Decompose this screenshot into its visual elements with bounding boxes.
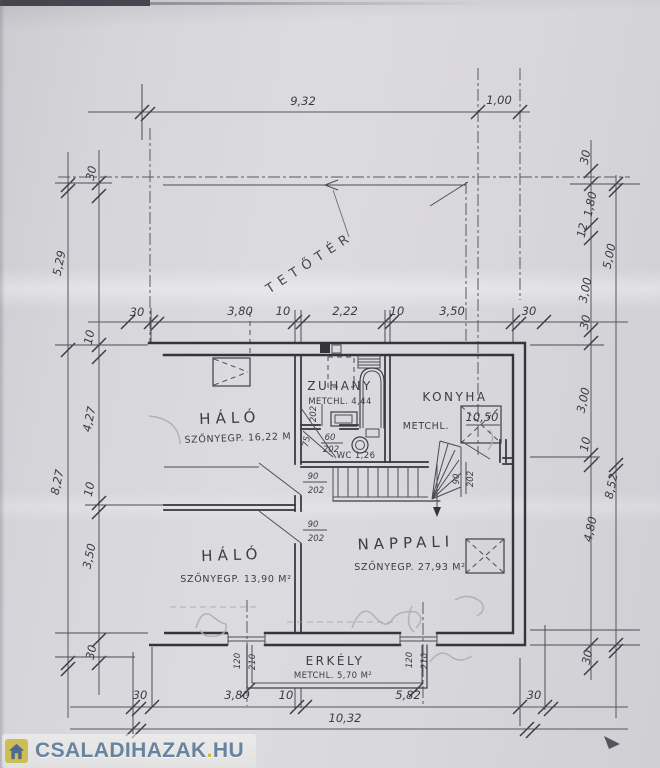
dim-left-2: 4,27	[80, 405, 99, 434]
attic-label: TETŐTÉR	[262, 228, 357, 297]
room-halo2-name: HÁLÓ	[201, 544, 263, 565]
dim-chain-bottom: 30 3,80 10 5,82 30 10,32	[70, 600, 628, 738]
dim-left-outer-1: 8,27	[48, 468, 67, 497]
washbasin	[331, 412, 357, 426]
dim-mid-5: 3,50	[439, 304, 465, 318]
floorplan-scan-page: TETŐTÉR 9,32 1,00 30 3,80 10 2,22 10 3,5…	[0, 0, 660, 768]
door-wc-w: 60	[325, 433, 336, 443]
room-halo1-detail: SZŐNYEGP. 16,22 M	[184, 431, 291, 446]
dim-mid-0: 30	[130, 305, 145, 319]
dim-right-7: 4,80	[581, 515, 600, 543]
dim-top-main: 9,32	[290, 94, 316, 108]
dim-chain-right: 30 1,80 12 3,00 30 3,00 10 4,80 30 5,00 …	[530, 140, 640, 749]
dim-mid-4: 10	[390, 304, 405, 318]
balcony-door-left-w: 120	[233, 653, 243, 669]
room-erkely-name: ERKÉLY	[306, 653, 365, 668]
dim-right-1: 1,80	[581, 190, 600, 218]
door-upper-h: 202	[308, 486, 324, 496]
room-zuhany-name: ZUHANY	[307, 379, 373, 393]
radiator	[358, 356, 380, 368]
watermark-brand: CSALADIHAZAK	[35, 739, 207, 762]
dim-bot-1: 3,80	[224, 688, 250, 702]
lobby-width-label: 75	[301, 435, 313, 447]
door-zuhany-h: 202	[309, 406, 319, 422]
room-nappali-detail: SZŐNYEGP. 27,93 M²	[354, 562, 465, 573]
floor-plan-drawing: TETŐTÉR 9,32 1,00 30 3,80 10 2,22 10 3,5…	[0, 0, 660, 768]
dim-right-5: 3,00	[574, 386, 593, 414]
dim-chain-top: 9,32 1,00	[88, 93, 530, 121]
dim-left-0: 30	[83, 165, 100, 182]
dim-mid-1: 3,80	[227, 304, 253, 318]
dim-right-8: 30	[579, 649, 596, 666]
room-halo2-detail: SZŐNYEGP. 13,90 M²	[180, 574, 291, 585]
dim-bot-4: 30	[527, 688, 542, 702]
dim-left-5: 30	[83, 644, 100, 661]
dim-chain-left: 5,29 8,27 30 10 4,27 10 3,50 30	[48, 150, 164, 718]
dim-mid-3: 2,22	[332, 304, 358, 318]
door-konyha-h: 202	[466, 471, 476, 487]
room-nappali-name: NAPPALI	[357, 532, 454, 553]
house-icon	[5, 739, 28, 763]
chimney-flue	[320, 344, 330, 353]
room-konyha-area: 10,50	[466, 410, 499, 424]
room-konyha-detail: METCHL.	[403, 421, 449, 432]
dim-bot-total: 10,32	[329, 711, 362, 725]
watermark-tld: HU	[213, 739, 244, 762]
room-zuhany-detail: METCHL. 4,44	[308, 397, 372, 407]
room-erkely-detail: METCHL. 5,70 M²	[294, 671, 372, 681]
balcony-door-right-w: 120	[405, 652, 415, 668]
room-wc-label: WC 1,26	[337, 451, 376, 461]
dim-bot-3: 5,82	[395, 688, 421, 702]
dim-right-4: 30	[577, 314, 594, 331]
dim-right-3: 3,00	[576, 276, 595, 304]
dim-right-outer-1: 8,52	[602, 472, 621, 500]
dim-left-1: 10	[81, 329, 98, 346]
dim-left-4: 3,50	[80, 542, 99, 570]
dim-bot-0: 30	[133, 688, 148, 702]
dim-bot-2: 10	[279, 688, 294, 702]
nappali-window	[466, 539, 504, 573]
room-halo1-name: HÁLÓ	[199, 407, 261, 428]
dim-right-0: 30	[577, 149, 594, 166]
halo1-window	[213, 358, 250, 386]
dim-mid-6: 30	[522, 304, 537, 318]
stair-direction-arrow	[433, 507, 441, 517]
dim-left-outer-0: 5,29	[50, 249, 69, 277]
scan-edge-artifact-2	[70, 2, 490, 5]
door-upper-w: 90	[308, 472, 319, 482]
scan-edge-shadow	[0, 0, 5, 768]
dim-chain-mid: 30 3,80 10 2,22 10 3,50 30	[88, 304, 628, 343]
dim-left-3: 10	[81, 481, 98, 498]
watermark-text: CSALADIHAZAK.HU	[35, 739, 244, 763]
door-konyha-w: 90	[452, 474, 462, 485]
watermark-bar: CSALADIHAZAK.HU	[2, 734, 256, 768]
toilet	[352, 429, 379, 453]
chimney-flue-2	[332, 345, 341, 353]
door-lower-h: 202	[308, 534, 324, 544]
dim-mid-2: 10	[276, 304, 291, 318]
door-lower-w: 90	[308, 520, 319, 530]
dim-right-2: 12	[574, 222, 591, 239]
dim-right-6: 10	[577, 436, 594, 453]
room-konyha-name: KONYHA	[422, 390, 487, 404]
dim-top-overhang: 1,00	[486, 93, 512, 107]
balcony-door-left-h: 210	[248, 654, 258, 670]
